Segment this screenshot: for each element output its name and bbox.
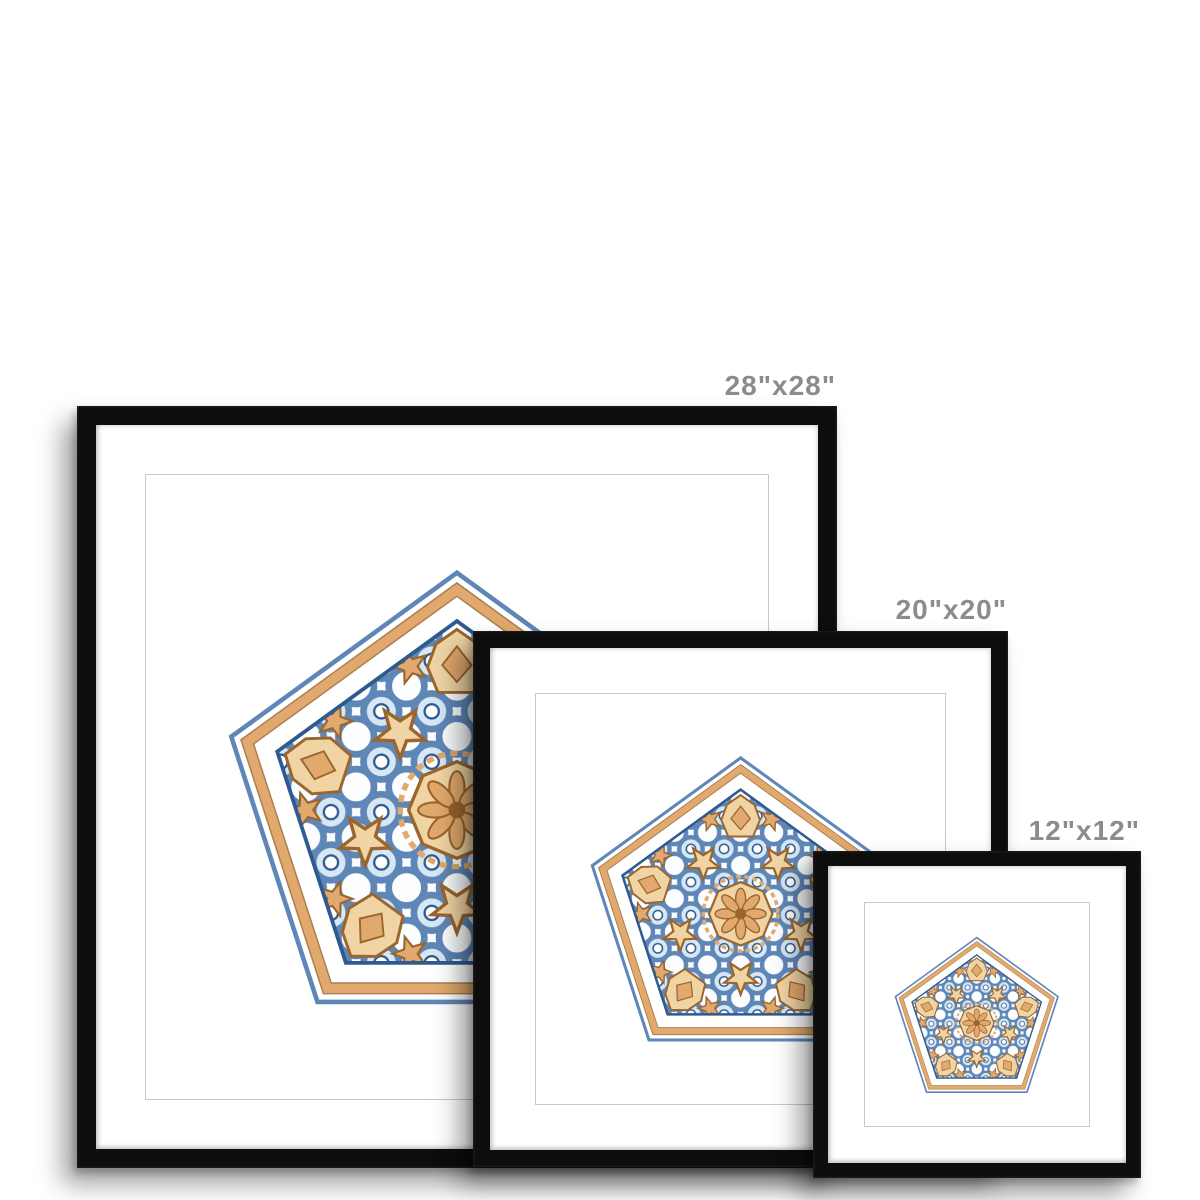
artwork-pentagon-pattern [886, 924, 1067, 1105]
framed-print-12 [813, 851, 1141, 1178]
size-label-12: 12"x12" [1029, 817, 1140, 845]
print-12 [864, 902, 1090, 1127]
size-label-28: 28"x28" [725, 372, 836, 400]
mat-12 [828, 866, 1126, 1163]
product-mockup-scene: 28"x28" 20"x20" 12"x12" [0, 0, 1200, 1200]
size-label-20: 20"x20" [896, 596, 1007, 624]
